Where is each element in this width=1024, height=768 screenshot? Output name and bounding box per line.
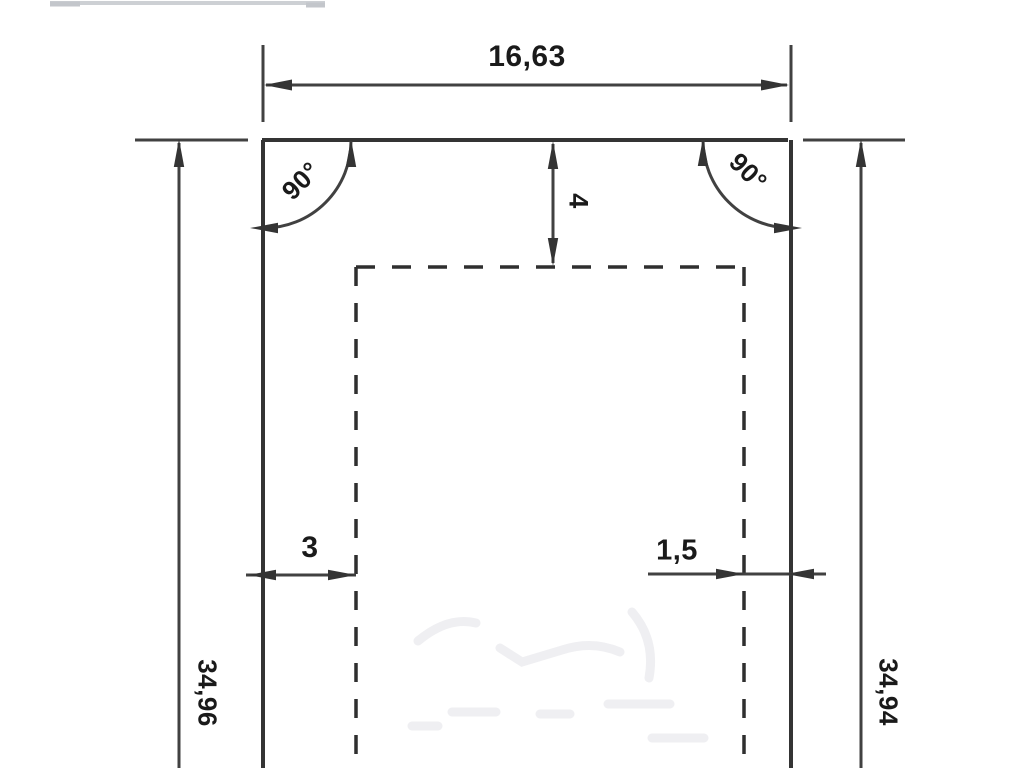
watermark-stroke — [500, 645, 620, 662]
label-offset-left: 3 — [301, 531, 318, 565]
label-width-top: 16,63 — [488, 40, 566, 74]
watermark-stroke — [418, 621, 476, 641]
height-dim-arrow-left-up — [174, 139, 184, 167]
label-height-left: 34,96 — [192, 659, 223, 727]
watermark-stroke — [632, 612, 651, 678]
width-dim-arrow-right — [761, 80, 789, 91]
height-dim-arrow-right-up — [856, 139, 866, 167]
angle-arc-right-arrow-up — [698, 138, 708, 166]
label-offset-right: 1,5 — [656, 535, 698, 568]
depth-dim-arrow-down — [548, 238, 558, 266]
angle-arc-right-arrow-side — [774, 223, 802, 233]
angle-arc-left-arrow-up — [346, 139, 356, 167]
label-depth-top: 4 — [563, 193, 594, 209]
offset-right-arrow-in — [716, 569, 744, 579]
watermark-stroke — [452, 704, 704, 738]
depth-dim-arrow-up — [548, 141, 558, 169]
drawing-canvas: 16,63 34,96 34,94 4 3 1,5 90° 90° — [0, 0, 1024, 768]
label-height-right: 34,94 — [873, 658, 904, 726]
offset-left-arrow-right — [328, 570, 356, 580]
width-dim-arrow-left — [264, 80, 292, 91]
dimension-drawing — [0, 0, 1024, 768]
